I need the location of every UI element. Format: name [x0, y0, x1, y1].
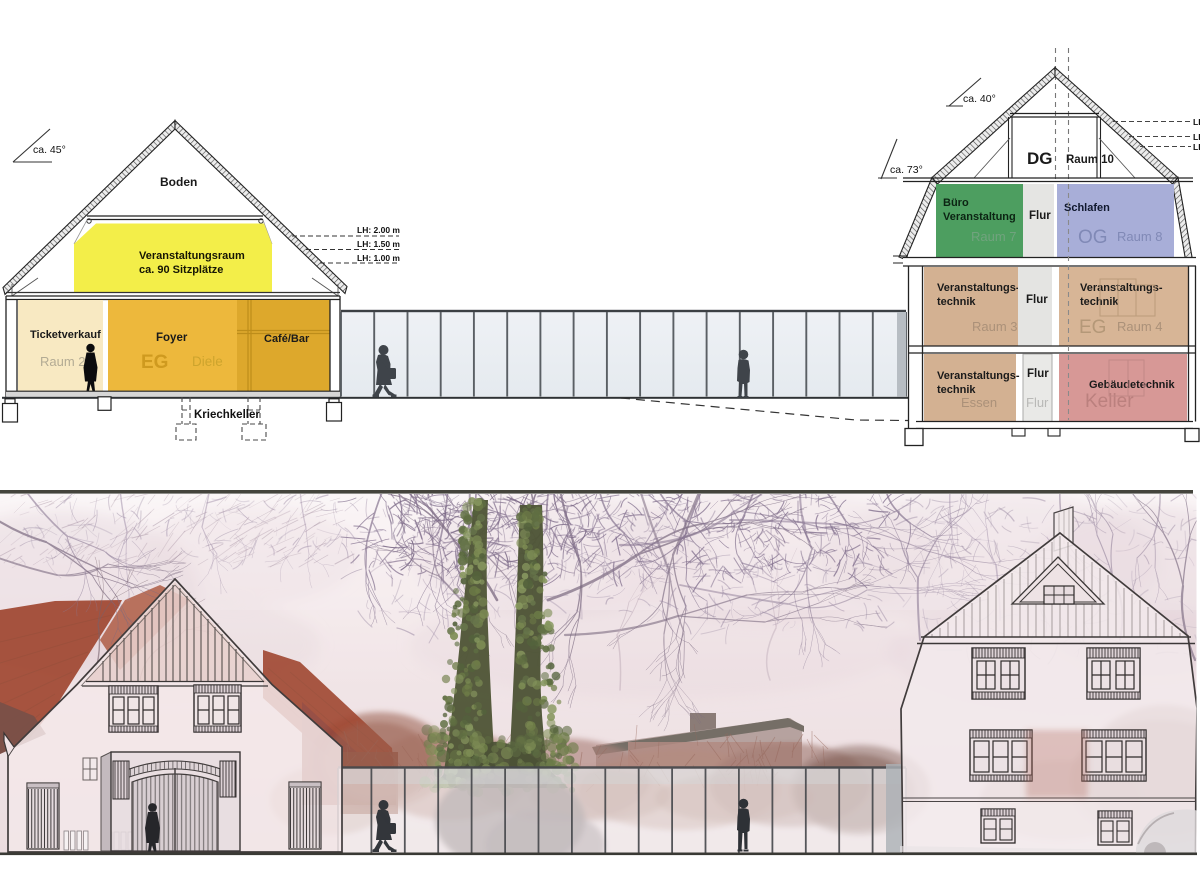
svg-text:Essen: Essen	[961, 395, 997, 410]
svg-text:ca. 45°: ca. 45°	[33, 144, 66, 156]
svg-text:Kriechkeller: Kriechkeller	[194, 409, 260, 421]
svg-text:LH:: LH:	[1193, 142, 1200, 152]
svg-text:EG: EG	[141, 352, 168, 373]
svg-text:Raum 10: Raum 10	[1066, 154, 1114, 166]
svg-text:ca. 40°: ca. 40°	[963, 93, 996, 105]
svg-text:DG: DG	[1027, 149, 1053, 168]
svg-text:Café/Bar: Café/Bar	[264, 333, 310, 345]
svg-text:Veranstaltung: Veranstaltung	[943, 211, 1016, 223]
svg-text:LH:: LH:	[1193, 117, 1200, 127]
svg-text:Raum 8: Raum 8	[1117, 229, 1163, 244]
svg-text:Flur: Flur	[1026, 395, 1049, 410]
svg-text:Büro: Büro	[943, 197, 969, 209]
svg-text:Boden: Boden	[160, 175, 197, 189]
svg-text:ca. 90 Sitzplätze: ca. 90 Sitzplätze	[139, 264, 223, 276]
svg-text:Schlafen: Schlafen	[1064, 202, 1110, 214]
svg-text:Veranstaltungs-: Veranstaltungs-	[937, 370, 1020, 382]
svg-text:Ticketverkauf: Ticketverkauf	[30, 329, 101, 341]
svg-text:LH:: LH:	[1193, 132, 1200, 142]
svg-text:Flur: Flur	[1027, 368, 1049, 380]
svg-text:Flur: Flur	[1029, 210, 1051, 222]
svg-text:technik: technik	[937, 296, 976, 308]
svg-text:LH: 2.00 m: LH: 2.00 m	[357, 225, 400, 235]
svg-text:EG: EG	[1079, 317, 1106, 338]
svg-text:Veranstaltungs-: Veranstaltungs-	[1080, 282, 1163, 294]
svg-text:Raum 7: Raum 7	[971, 229, 1017, 244]
svg-text:Diele: Diele	[192, 354, 223, 369]
svg-text:Veranstaltungs-: Veranstaltungs-	[937, 282, 1020, 294]
svg-text:Raum 3: Raum 3	[972, 319, 1018, 334]
svg-text:Keller: Keller	[1085, 391, 1134, 412]
svg-text:Raum 4: Raum 4	[1117, 319, 1163, 334]
svg-text:Flur: Flur	[1026, 294, 1048, 306]
svg-text:LH: 1.00 m: LH: 1.00 m	[357, 253, 400, 263]
svg-text:Raum 2: Raum 2	[40, 354, 86, 369]
svg-text:Veranstaltungsraum: Veranstaltungsraum	[139, 250, 245, 262]
svg-text:Foyer: Foyer	[156, 332, 188, 344]
svg-text:LH: 1.50 m: LH: 1.50 m	[357, 239, 400, 249]
svg-text:ca. 73°: ca. 73°	[890, 164, 923, 176]
svg-text:OG: OG	[1078, 227, 1108, 248]
svg-text:Gebäudetechnik: Gebäudetechnik	[1089, 379, 1175, 391]
